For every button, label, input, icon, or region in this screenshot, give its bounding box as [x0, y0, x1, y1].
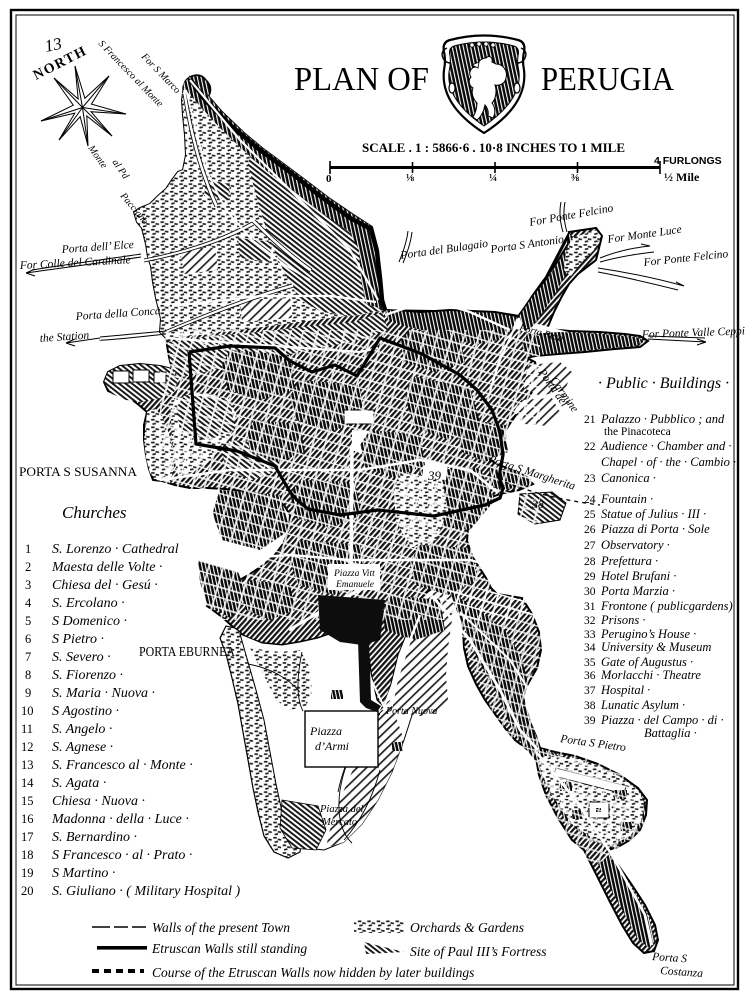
- svg-text:S. Agata ·: S. Agata ·: [52, 776, 106, 791]
- svg-text:35: 35: [584, 657, 596, 669]
- svg-text:Walls of the present Town: Walls of the present Town: [152, 920, 290, 935]
- svg-text:27: 27: [584, 540, 596, 552]
- svg-text:Churches: Churches: [62, 503, 127, 522]
- svg-text:For Colle del Cardinale: For Colle del Cardinale: [19, 254, 132, 272]
- svg-text:PLAN OF: PLAN OF: [294, 61, 429, 98]
- svg-text:3: 3: [25, 578, 31, 592]
- svg-text:32: 32: [584, 615, 596, 627]
- svg-text:Statue of Julius · III ·: Statue of Julius · III ·: [601, 507, 706, 521]
- svg-text:Porta della Conca: Porta della Conca: [74, 305, 161, 323]
- svg-text:38: 38: [584, 700, 596, 712]
- svg-text:Site of Paul III’s Fortress: Site of Paul III’s Fortress: [410, 944, 547, 959]
- svg-text:5: 5: [25, 614, 31, 628]
- svg-text:Emanuele: Emanuele: [335, 580, 374, 590]
- svg-text:al Pd: al Pd: [110, 157, 132, 182]
- svg-text:2: 2: [25, 560, 31, 574]
- svg-text:39: 39: [584, 715, 596, 727]
- svg-text:30: 30: [584, 586, 596, 598]
- svg-text:Audience · Chamber and ·: Audience · Chamber and ·: [600, 439, 732, 453]
- svg-text:11: 11: [21, 722, 33, 736]
- svg-text:S. Agnese ·: S. Agnese ·: [52, 740, 113, 755]
- svg-text:20: 20: [21, 884, 34, 898]
- svg-text:S. Severo ·: S. Severo ·: [52, 650, 111, 665]
- svg-text:Piazza di Porta · Sole: Piazza di Porta · Sole: [600, 522, 710, 536]
- svg-text:14: 14: [21, 776, 34, 790]
- svg-text:S. Francesco al · Monte ·: S. Francesco al · Monte ·: [52, 758, 193, 773]
- svg-text:SCALE . 1 : 5866·6 . 10·8 INCH: SCALE . 1 : 5866·6 . 10·8 INCHES TO 1 MI…: [362, 140, 625, 155]
- svg-text:8: 8: [25, 668, 31, 682]
- svg-text:S. Giuliano · ( Military Hospi: S. Giuliano · ( Military Hospital ): [52, 884, 241, 899]
- svg-text:7: 7: [25, 650, 31, 664]
- svg-text:16: 16: [21, 812, 34, 826]
- svg-text:For Ponte Felcino: For Ponte Felcino: [527, 202, 614, 229]
- svg-text:⅜: ⅜: [571, 172, 579, 184]
- svg-text:22: 22: [584, 441, 596, 453]
- svg-text:Chapel · of · the · Cambio ·: Chapel · of · the · Cambio ·: [601, 455, 736, 469]
- svg-text:29: 29: [584, 571, 596, 583]
- svg-text:31: 31: [584, 601, 596, 613]
- svg-text:Hotel Brufani ·: Hotel Brufani ·: [600, 569, 676, 583]
- svg-text:Maesta delle Volte ·: Maesta delle Volte ·: [51, 560, 162, 575]
- svg-text:Piazza del: Piazza del: [319, 804, 364, 815]
- svg-text:the Pinacoteca: the Pinacoteca: [604, 426, 671, 438]
- svg-text:S Agostino ·: S Agostino ·: [52, 704, 119, 719]
- svg-text:9: 9: [25, 686, 31, 700]
- svg-text:Mercato: Mercato: [321, 817, 357, 828]
- svg-text:S Francesco · al · Prato ·: S Francesco · al · Prato ·: [52, 848, 192, 863]
- svg-text:Chiesa · Nuova ·: Chiesa · Nuova ·: [52, 794, 145, 809]
- svg-text:36: 36: [584, 670, 596, 682]
- svg-text:Chiesa del · Gesú ·: Chiesa del · Gesú ·: [52, 578, 158, 593]
- svg-text:13: 13: [43, 34, 64, 56]
- svg-text:25: 25: [584, 509, 596, 521]
- svg-text:Porta del Bulagaio: Porta del Bulagaio: [399, 238, 489, 262]
- svg-text:University & Museum: University & Museum: [601, 640, 711, 654]
- svg-text:0: 0: [326, 173, 332, 185]
- svg-text:18: 18: [21, 848, 34, 862]
- svg-text:Canonica ·: Canonica ·: [601, 471, 656, 485]
- svg-text:Costanza: Costanza: [660, 965, 704, 980]
- svg-text:Lunatic Asylum ·: Lunatic Asylum ·: [600, 698, 685, 712]
- svg-text:Morlacchi · Theatre: Morlacchi · Theatre: [600, 668, 701, 682]
- svg-text:Piazza · del Campo · di ·: Piazza · del Campo · di ·: [600, 713, 724, 727]
- svg-text:Hospital ·: Hospital ·: [600, 683, 650, 697]
- svg-text:Prisons ·: Prisons ·: [600, 613, 645, 627]
- svg-text:Etruscan Walls still standi: Etruscan Walls still standing: [151, 941, 307, 956]
- svg-text:d’Armi: d’Armi: [315, 739, 349, 753]
- svg-text:S. Lorenzo · Cathedral: S. Lorenzo · Cathedral: [52, 542, 179, 557]
- svg-text:Palazzo · Pubblico ; and: Palazzo · Pubblico ; and: [600, 412, 725, 426]
- svg-text:10: 10: [21, 704, 34, 718]
- svg-text:½ Mile: ½ Mile: [664, 170, 700, 184]
- svg-text:Orchards & Gardens: Orchards & Gardens: [410, 920, 524, 935]
- svg-text:Piazza Vitt: Piazza Vitt: [333, 569, 375, 579]
- svg-text:12: 12: [21, 740, 34, 754]
- svg-text:For Ponte Felcino: For Ponte Felcino: [642, 248, 729, 269]
- svg-text:Porta dell’ Elce: Porta dell’ Elce: [60, 239, 134, 256]
- svg-text:Fountain ·: Fountain ·: [600, 492, 653, 506]
- svg-text:33: 33: [584, 629, 596, 641]
- svg-text:24: 24: [584, 494, 596, 506]
- svg-text:Porta S Antonio: Porta S Antonio: [489, 234, 565, 256]
- svg-text:26: 26: [584, 524, 596, 536]
- svg-text:4: 4: [25, 596, 32, 610]
- svg-text:Monte: Monte: [85, 143, 110, 172]
- svg-text:S Domenico ·: S Domenico ·: [52, 614, 127, 629]
- svg-text:Observatory ·: Observatory ·: [601, 538, 670, 552]
- svg-text:34: 34: [584, 642, 596, 654]
- svg-text:39: 39: [427, 468, 442, 483]
- svg-text:Porta Nuova: Porta Nuova: [385, 706, 437, 717]
- svg-text:Perugino’s House ·: Perugino’s House ·: [600, 627, 696, 641]
- svg-text:For Ponte Valle Ceppi: For Ponte Valle Ceppi: [641, 325, 746, 341]
- svg-text:Course of the Etruscan Wal: Course of the Etruscan Walls now hidden …: [152, 965, 474, 980]
- svg-text:38: 38: [531, 497, 544, 511]
- svg-text:S. Ercolano ·: S. Ercolano ·: [52, 596, 125, 611]
- svg-text:PORTA S SUSANNA: PORTA S SUSANNA: [19, 464, 138, 479]
- svg-text:28: 28: [584, 556, 596, 568]
- svg-text:37: 37: [584, 685, 596, 697]
- svg-text:¼: ¼: [489, 172, 497, 184]
- svg-text:Frontone ( publicgardens): Frontone ( publicgardens): [600, 599, 733, 613]
- svg-text:4 FURLONGS: 4 FURLONGS: [654, 155, 722, 167]
- svg-text:Madonna · della · Luce ·: Madonna · della · Luce ·: [51, 812, 189, 827]
- svg-text:19: 19: [21, 866, 34, 880]
- svg-text:S. Maria · Nuova ·: S. Maria · Nuova ·: [52, 686, 155, 701]
- svg-text:⅛: ⅛: [406, 172, 414, 184]
- svg-text:the Station: the Station: [39, 330, 89, 345]
- svg-text:PERUGIA: PERUGIA: [541, 61, 674, 98]
- svg-text:23: 23: [584, 473, 596, 485]
- svg-text:For Monte Luce: For Monte Luce: [606, 224, 683, 246]
- svg-text:Battaglia ·: Battaglia ·: [644, 726, 697, 740]
- svg-text:Porta S: Porta S: [651, 951, 688, 965]
- svg-text:S. Bernardino ·: S. Bernardino ·: [52, 830, 137, 845]
- svg-text:6: 6: [25, 632, 31, 646]
- svg-text:17: 17: [21, 830, 34, 844]
- svg-text:Prefettura ·: Prefettura ·: [600, 554, 658, 568]
- svg-text:Gate of Augustus ·: Gate of Augustus ·: [601, 655, 693, 669]
- svg-text:S Martino ·: S Martino ·: [52, 866, 115, 881]
- svg-text:1: 1: [25, 542, 31, 556]
- svg-text:21: 21: [584, 414, 596, 426]
- svg-text:Porta Marzia ·: Porta Marzia ·: [600, 584, 675, 598]
- svg-text:· Public · Buildings ·: · Public · Buildings ·: [598, 375, 729, 392]
- svg-text:S. Fiorenzo ·: S. Fiorenzo ·: [52, 668, 123, 683]
- svg-text:PORTA EBURNEA: PORTA EBURNEA: [139, 644, 235, 659]
- svg-text:Piazza: Piazza: [309, 724, 342, 738]
- svg-text:S. Angelo ·: S. Angelo ·: [52, 722, 112, 737]
- svg-text:15: 15: [21, 794, 34, 808]
- svg-text:S Pietro ·: S Pietro ·: [52, 632, 104, 647]
- svg-text:13: 13: [21, 758, 34, 772]
